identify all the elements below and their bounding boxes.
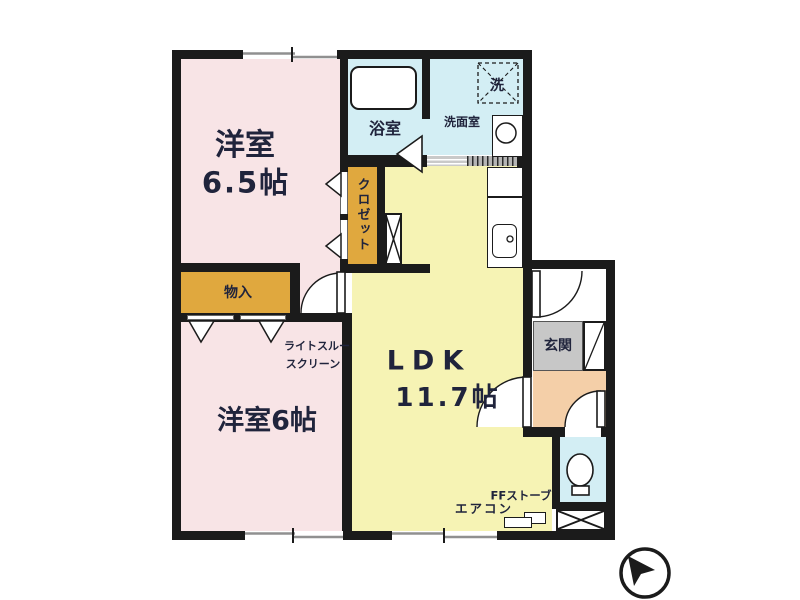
label-ldk-size: 11.7帖 [395, 385, 500, 411]
hallway [533, 371, 606, 427]
label-western65-name: 洋室 [215, 131, 275, 161]
shoe-cabinet [583, 321, 606, 371]
label-storage: 物入 [224, 286, 252, 300]
kitchen-sink [492, 224, 517, 258]
front-door-swing [532, 271, 582, 317]
floor-plan: 洋室 6.5帖 洋室6帖 LDK 11.7帖 浴室 洗面室 洗 クロゼット 物入… [0, 0, 800, 600]
storage-door-track [240, 315, 286, 320]
label-bathroom: 浴室 [369, 121, 401, 137]
toilet-room [560, 437, 606, 502]
kitchen-counter-divider [487, 196, 523, 198]
label-closet: クロゼット [356, 178, 369, 253]
storage-door-track [187, 315, 234, 320]
north-arrow-compass [621, 549, 669, 597]
label-light-through-screen-1: ライトスルー [284, 341, 350, 352]
label-washer: 洗 [490, 79, 504, 93]
label-western65-size: 6.5帖 [202, 169, 290, 198]
aircon-icon [504, 517, 532, 528]
meter-box [556, 509, 606, 531]
room-western-6-5-entry-alcove [300, 263, 342, 313]
pipe-shaft [385, 213, 402, 265]
label-washroom: 洗面室 [444, 116, 480, 128]
label-light-through-screen-2: スクリーン [286, 359, 340, 370]
vanity-unit [492, 115, 523, 157]
label-aircon: エアコン [455, 503, 513, 516]
accordion-door-band [467, 156, 517, 166]
label-entrance: 玄関 [544, 339, 572, 353]
sliding-door-band [427, 156, 467, 166]
label-ldk-name: LDK [387, 348, 472, 375]
label-western6: 洋室6帖 [217, 408, 317, 435]
bathtub [350, 66, 417, 110]
